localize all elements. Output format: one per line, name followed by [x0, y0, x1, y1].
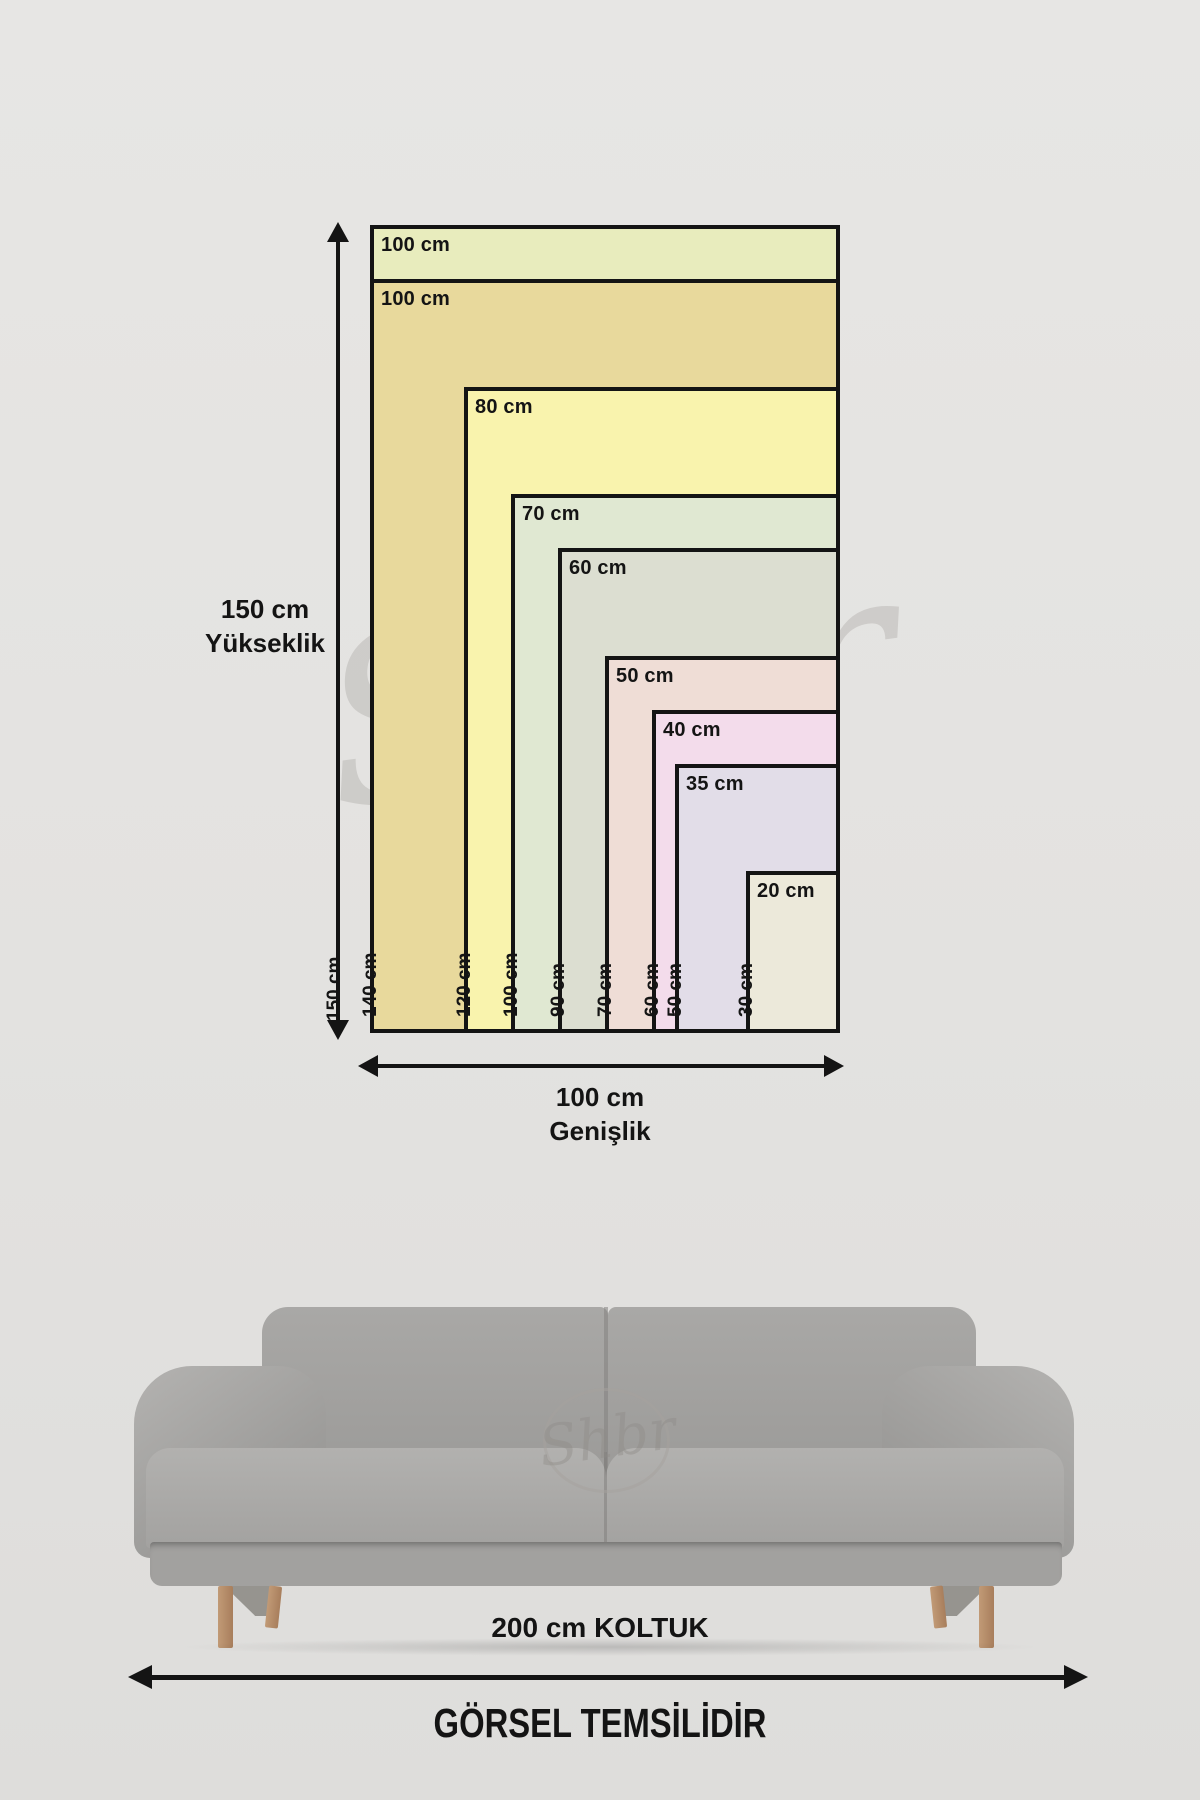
size-rect-20x30: 20 cm30 cm: [746, 871, 840, 1033]
height-label: 70 cm: [595, 963, 617, 1017]
sofa-size-caption: 200 cm KOLTUK: [0, 1612, 1200, 1644]
width-axis-value: 100 cm: [420, 1080, 780, 1114]
height-label: 100 cm: [501, 953, 523, 1017]
width-label: 20 cm: [757, 880, 815, 903]
height-label: 60 cm: [642, 963, 664, 1017]
height-label: 50 cm: [665, 963, 687, 1017]
width-label: 100 cm: [381, 288, 450, 311]
width-axis-label: 100 cm Genişlik: [420, 1080, 780, 1148]
sofa-width-arrow-line: [150, 1675, 1068, 1680]
width-arrow-line: [378, 1064, 824, 1068]
height-axis-value: 150 cm: [155, 592, 375, 626]
sofa-width-arrow-left-icon: [128, 1665, 152, 1689]
sofa-base: [150, 1542, 1062, 1586]
width-label: 100 cm: [381, 234, 450, 257]
sofa-width-arrow-right-icon: [1064, 1665, 1088, 1689]
representative-image-notice: GÖRSEL TEMSİLİDİR: [120, 1700, 1080, 1747]
height-axis-label: 150 cm Yükseklik: [155, 592, 375, 660]
height-label: 140 cm: [360, 953, 382, 1017]
height-label: 90 cm: [548, 963, 570, 1017]
outer-height-label: 150 cm: [324, 957, 346, 1021]
width-label: 70 cm: [522, 503, 580, 526]
sofa-watermark-script: Shbr: [523, 1375, 692, 1506]
height-arrow-up-icon: [327, 222, 349, 242]
width-label: 50 cm: [616, 665, 674, 688]
product-size-chart: Shbr 100 cm100 cm140 cm80 cm120 cm70 cm1…: [0, 0, 1200, 1800]
width-axis-word: Genişlik: [420, 1114, 780, 1148]
width-label: 35 cm: [686, 773, 744, 796]
height-label: 30 cm: [736, 963, 758, 1017]
width-arrow-left-icon: [358, 1055, 378, 1077]
width-arrow-right-icon: [824, 1055, 844, 1077]
width-label: 60 cm: [569, 557, 627, 580]
width-label: 80 cm: [475, 396, 533, 419]
height-label: 120 cm: [454, 953, 476, 1017]
height-arrow-down-icon: [327, 1020, 349, 1040]
height-axis-word: Yükseklik: [155, 626, 375, 660]
width-label: 40 cm: [663, 719, 721, 742]
